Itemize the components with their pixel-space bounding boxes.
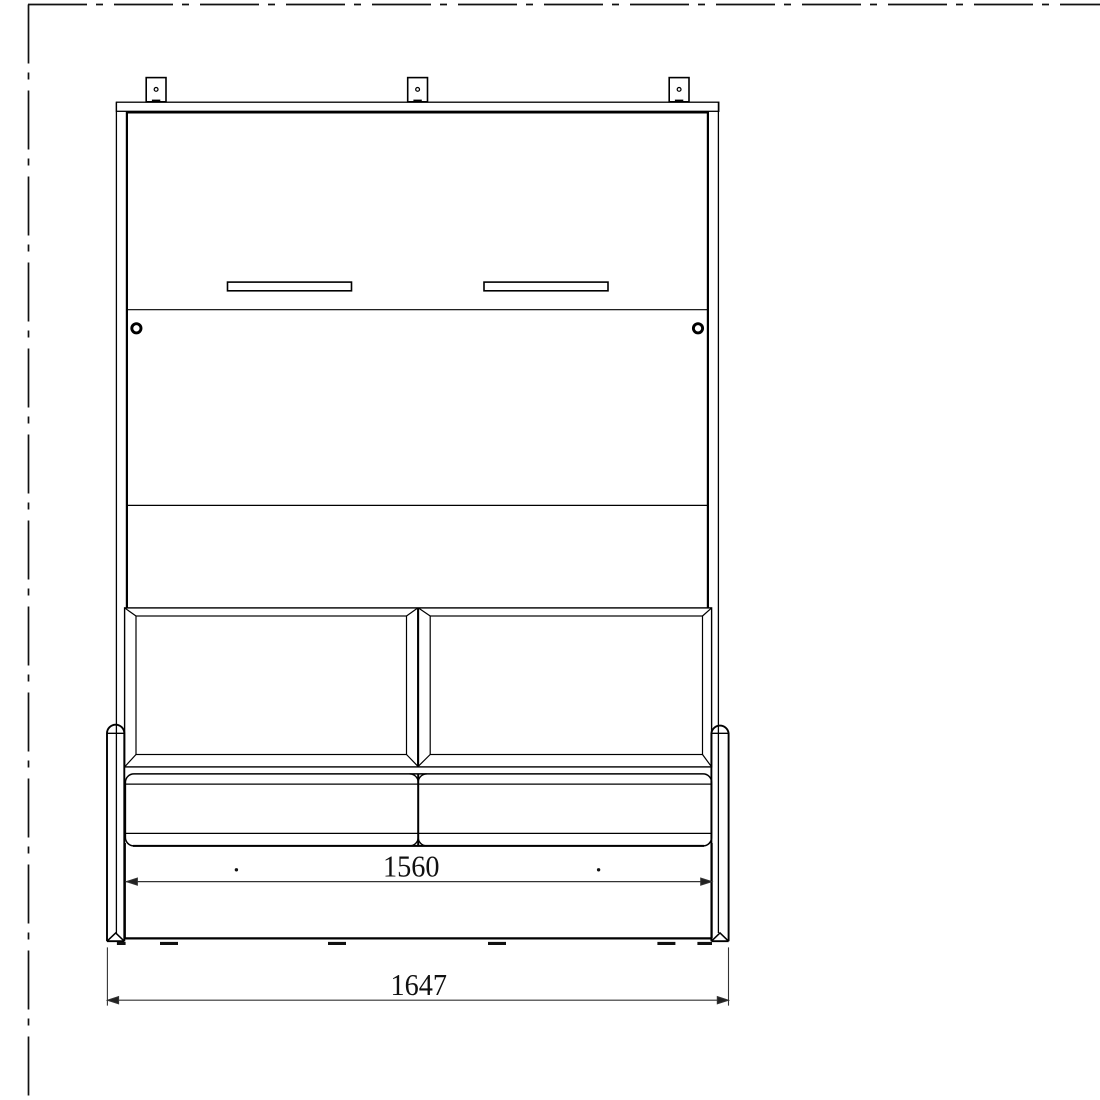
- svg-text:1647: 1647: [391, 968, 448, 1002]
- svg-text:1560: 1560: [383, 850, 440, 884]
